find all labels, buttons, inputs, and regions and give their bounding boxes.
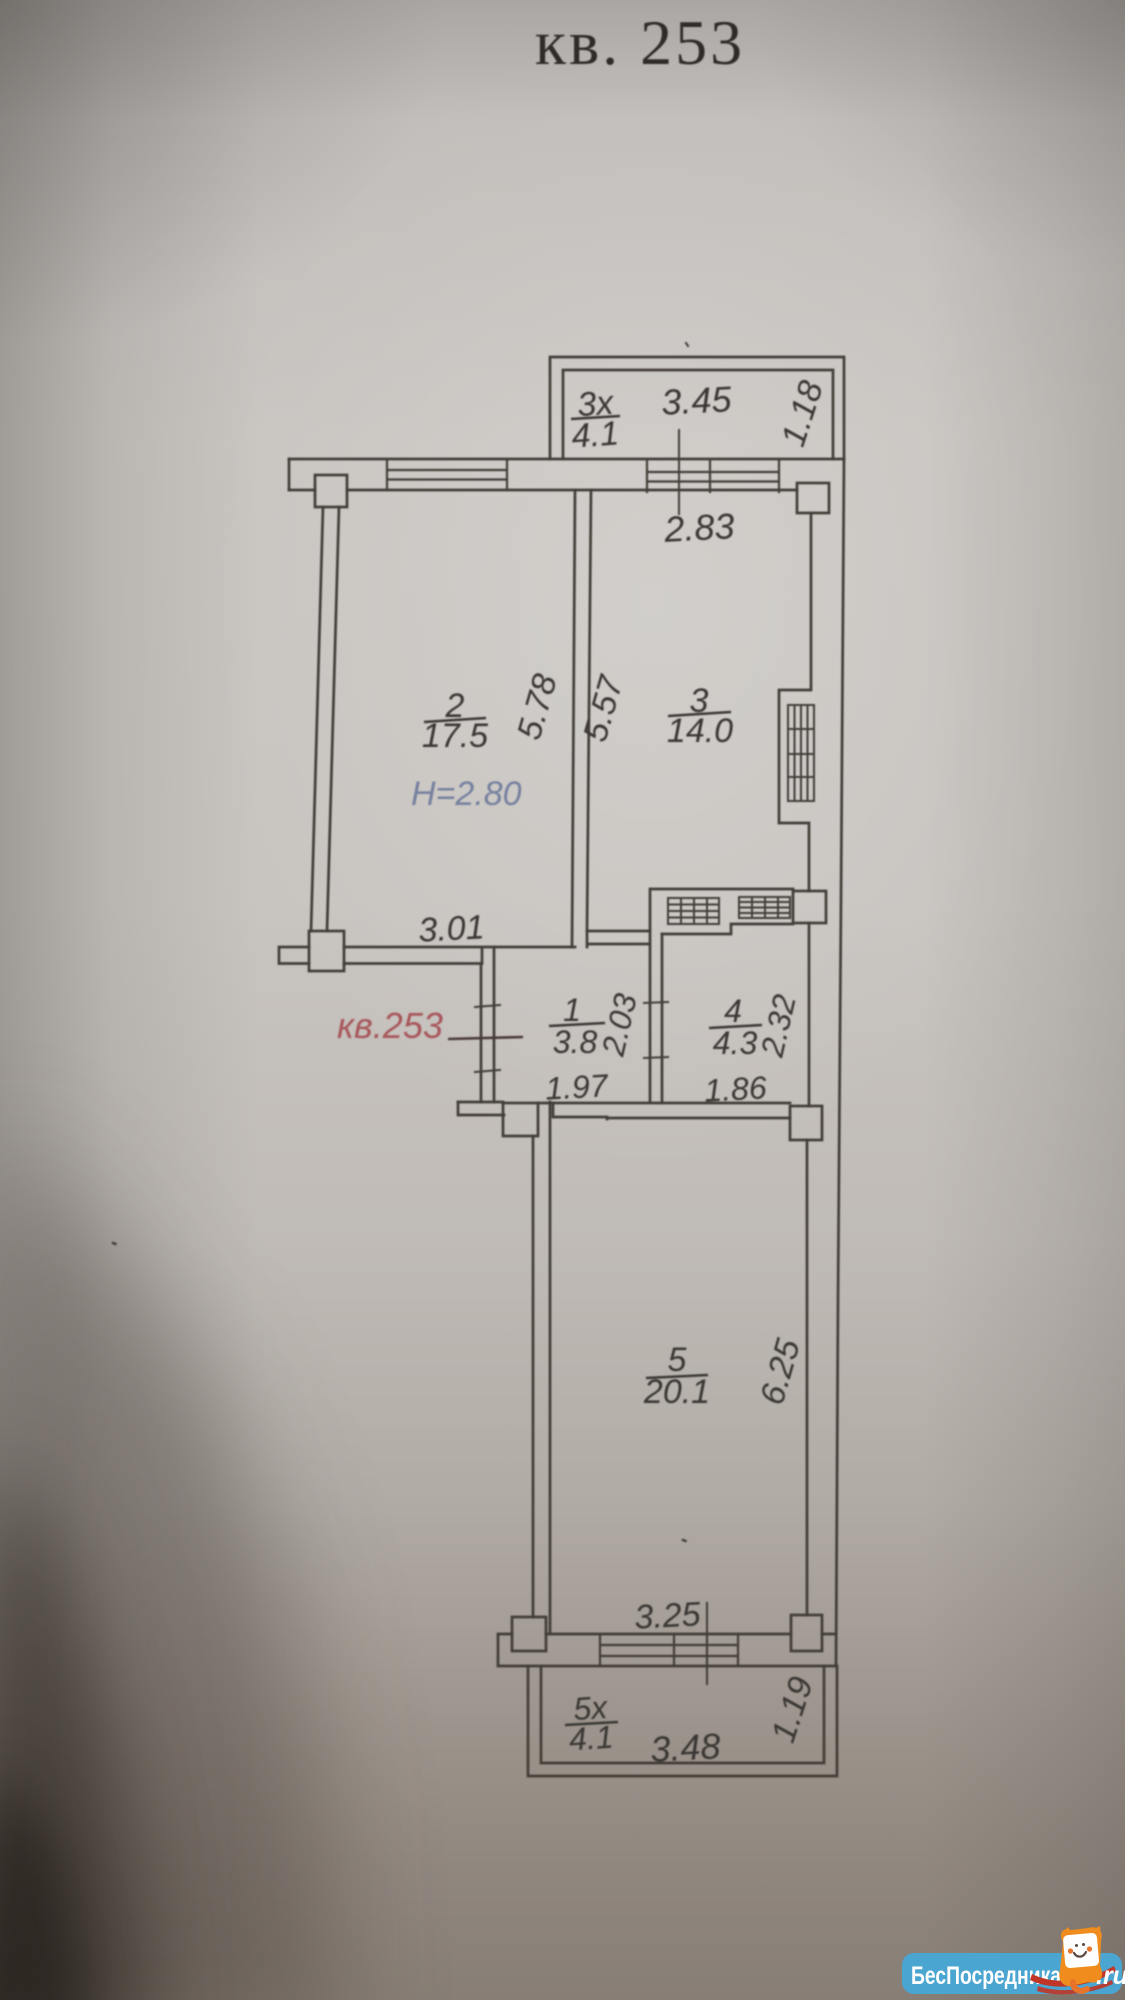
svg-text:1.18: 1.18 [774,376,831,451]
svg-text:5.78: 5.78 [510,670,565,744]
svg-text:14.0: 14.0 [667,712,733,750]
svg-text:3.48: 3.48 [649,1725,721,1770]
svg-text:3.8: 3.8 [553,1024,598,1060]
svg-text:4.3: 4.3 [713,1025,758,1061]
svg-text:кв.253: кв.253 [337,1005,443,1046]
svg-text:1.19: 1.19 [764,1672,821,1747]
svg-text:3.45: 3.45 [660,378,733,423]
svg-text:3.25: 3.25 [633,1595,701,1636]
svg-text:3.01: 3.01 [417,908,485,949]
svg-text:H=2.80: H=2.80 [411,775,522,813]
svg-text:4: 4 [724,993,742,1029]
svg-text:.ru: .ru [1096,1962,1125,1990]
svg-text:4.1: 4.1 [570,414,620,455]
svg-text:1.97: 1.97 [544,1067,609,1106]
svg-text:2.32: 2.32 [754,991,803,1061]
svg-text:5.57: 5.57 [576,671,631,746]
svg-text:6.25: 6.25 [753,1335,808,1409]
svg-text:17.5: 17.5 [422,717,488,755]
svg-text:20.1: 20.1 [643,1373,710,1411]
svg-text:2.03: 2.03 [595,990,644,1060]
svg-text:1: 1 [563,992,581,1028]
svg-text:БесПосредника: БесПосредника [911,1962,1062,1990]
svg-text:1.86: 1.86 [703,1069,767,1108]
svg-text:2.83: 2.83 [662,505,735,550]
svg-text:кв. 253: кв. 253 [535,7,745,78]
